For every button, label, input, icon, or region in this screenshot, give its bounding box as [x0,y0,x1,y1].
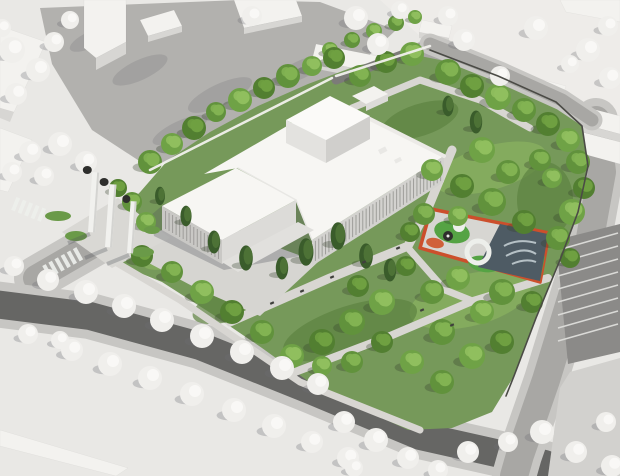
hedge [45,211,71,221]
pillar-bust [100,178,109,186]
pillar-bust [122,195,130,203]
pillar-bust [83,166,92,174]
hedge [144,226,160,234]
aerial-architectural-render [0,0,620,476]
hedge [130,247,154,257]
render-canvas [0,0,620,476]
